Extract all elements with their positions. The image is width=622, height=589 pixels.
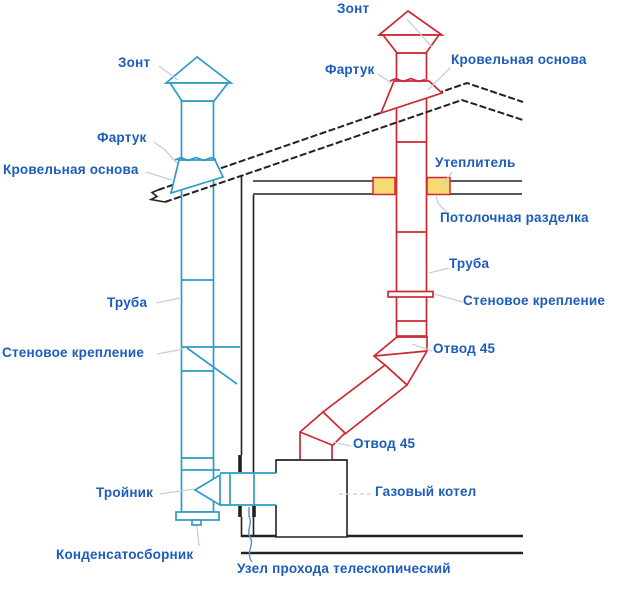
label-otvod45-upper: Отвод 45 (433, 341, 495, 357)
label-truba-red: Труба (449, 256, 489, 272)
label-zont-blue: Зонт (118, 55, 150, 71)
label-truba-blue: Труба (107, 295, 147, 311)
label-troynik: Тройник (96, 485, 153, 501)
label-potolochnaya-razdelka: Потолочная разделка (440, 210, 589, 226)
label-fartuk-red: Фартук (325, 62, 375, 78)
gas-boiler (276, 460, 347, 537)
label-uzel-prohoda: Узел прохода телескопический (237, 561, 451, 577)
label-gazovy-kotel: Газовый котел (375, 484, 476, 500)
chimney-installation-diagram: Зонт Фартук Кровельная основа Труба Стен… (0, 0, 622, 589)
label-fartuk-blue: Фартук (97, 130, 147, 146)
label-stenovoe-kreplenie-red: Стеновое крепление (463, 293, 605, 309)
red-chimney-cap (379, 11, 442, 53)
label-stenovoe-kreplenie-blue: Стеновое крепление (2, 345, 144, 361)
label-otvod45-lower: Отвод 45 (353, 436, 415, 452)
wall-pass-node (240, 455, 254, 517)
red-wall-bracket (388, 292, 433, 298)
label-uteplitel: Утеплитель (435, 155, 516, 171)
label-krovelnaya-osnova-blue: Кровельная основа (3, 162, 139, 178)
label-krovelnaya-osnova-red: Кровельная основа (451, 52, 587, 68)
condensate-collector (176, 512, 219, 525)
label-zont-red: Зонт (337, 1, 369, 17)
label-kondensatosbornik: Конденсатосборник (56, 547, 193, 563)
